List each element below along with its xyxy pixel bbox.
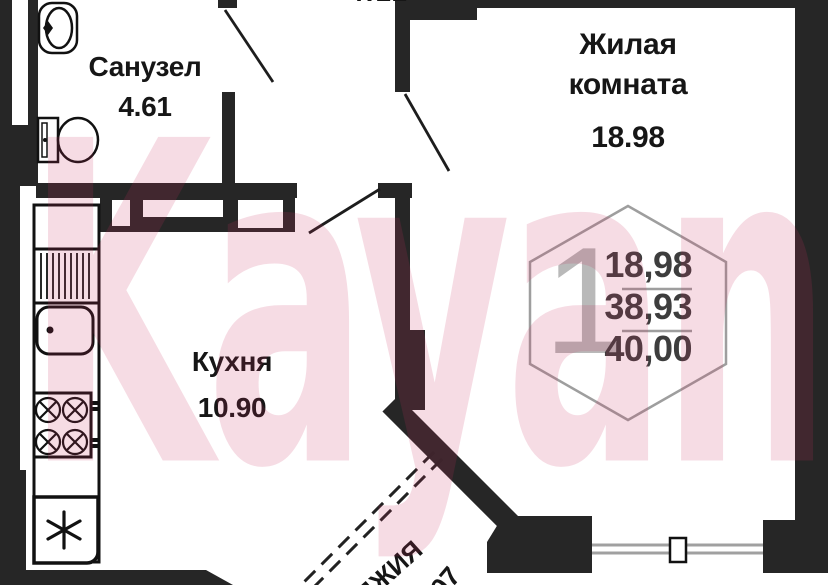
bathroom-area: 4.61 — [50, 91, 240, 123]
window-icon — [592, 538, 763, 562]
stove-icon — [34, 393, 99, 457]
dish-drainer-icon — [34, 249, 99, 303]
badge-area-without-loggia: 38,93 — [540, 289, 692, 325]
badge-living-area: 18,98 — [540, 247, 692, 283]
door-swing-kitchen — [309, 189, 380, 233]
floor-plan-canvas: Санузел 4.61 Жилая комната 18.98 Кухня 1… — [0, 0, 828, 585]
bathroom-sink-icon — [39, 3, 77, 53]
fridge-icon — [34, 497, 98, 563]
bathroom-label: Санузел — [50, 51, 240, 83]
hallway-area-clipped: 4.11 — [348, 0, 409, 8]
kitchen-label: Кухня — [157, 346, 307, 378]
kitchen-area: 10.90 — [157, 392, 307, 424]
kitchen-sink-icon — [37, 307, 93, 354]
toilet-icon — [38, 118, 98, 162]
door-swing-living-room — [405, 94, 449, 171]
living-room-area: 18.98 — [548, 121, 708, 155]
living-room-label-line2: комната — [548, 68, 708, 102]
badge-total-area: 40,00 — [540, 331, 692, 367]
living-room-label-line1: Жилая — [548, 28, 708, 62]
